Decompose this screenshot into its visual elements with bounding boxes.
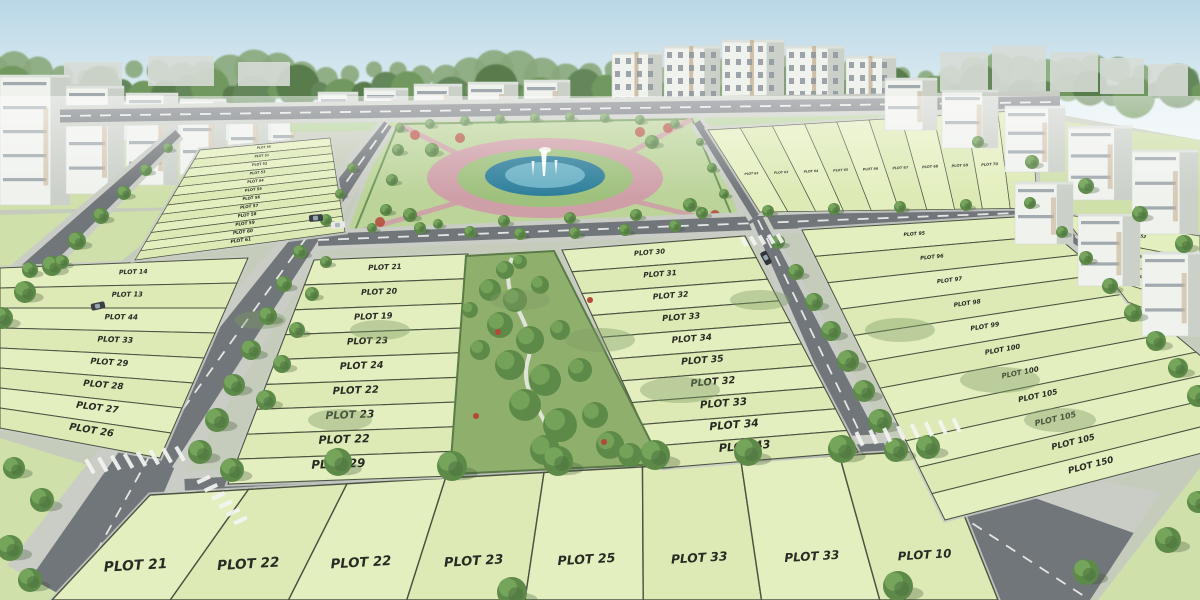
plot-label: PLOT 21 — [368, 262, 402, 272]
plot-label: PLOT 14 — [119, 268, 148, 276]
flower-bed — [375, 217, 385, 227]
plot — [525, 467, 643, 600]
plot-label: PLOT 22 — [332, 385, 379, 398]
masterplan-render: PLOT 21PLOT 22PLOT 22PLOT 23PLOT 25PLOT … — [0, 0, 1200, 600]
car — [309, 214, 324, 222]
car — [331, 221, 346, 229]
plot-label: PLOT 24 — [340, 360, 385, 373]
plot-label: PLOT 33 — [97, 334, 133, 344]
masterplan-svg: PLOT 21PLOT 22PLOT 22PLOT 23PLOT 25PLOT … — [0, 0, 1200, 600]
plot-label: PLOT 19 — [354, 310, 393, 321]
plot-label: PLOT 22 — [318, 432, 370, 447]
plot-label: PLOT 44 — [105, 312, 138, 321]
plot-label: PLOT 20 — [361, 287, 398, 297]
atmospheric-haze — [0, 96, 1200, 196]
plot-label: PLOT 13 — [112, 290, 143, 298]
